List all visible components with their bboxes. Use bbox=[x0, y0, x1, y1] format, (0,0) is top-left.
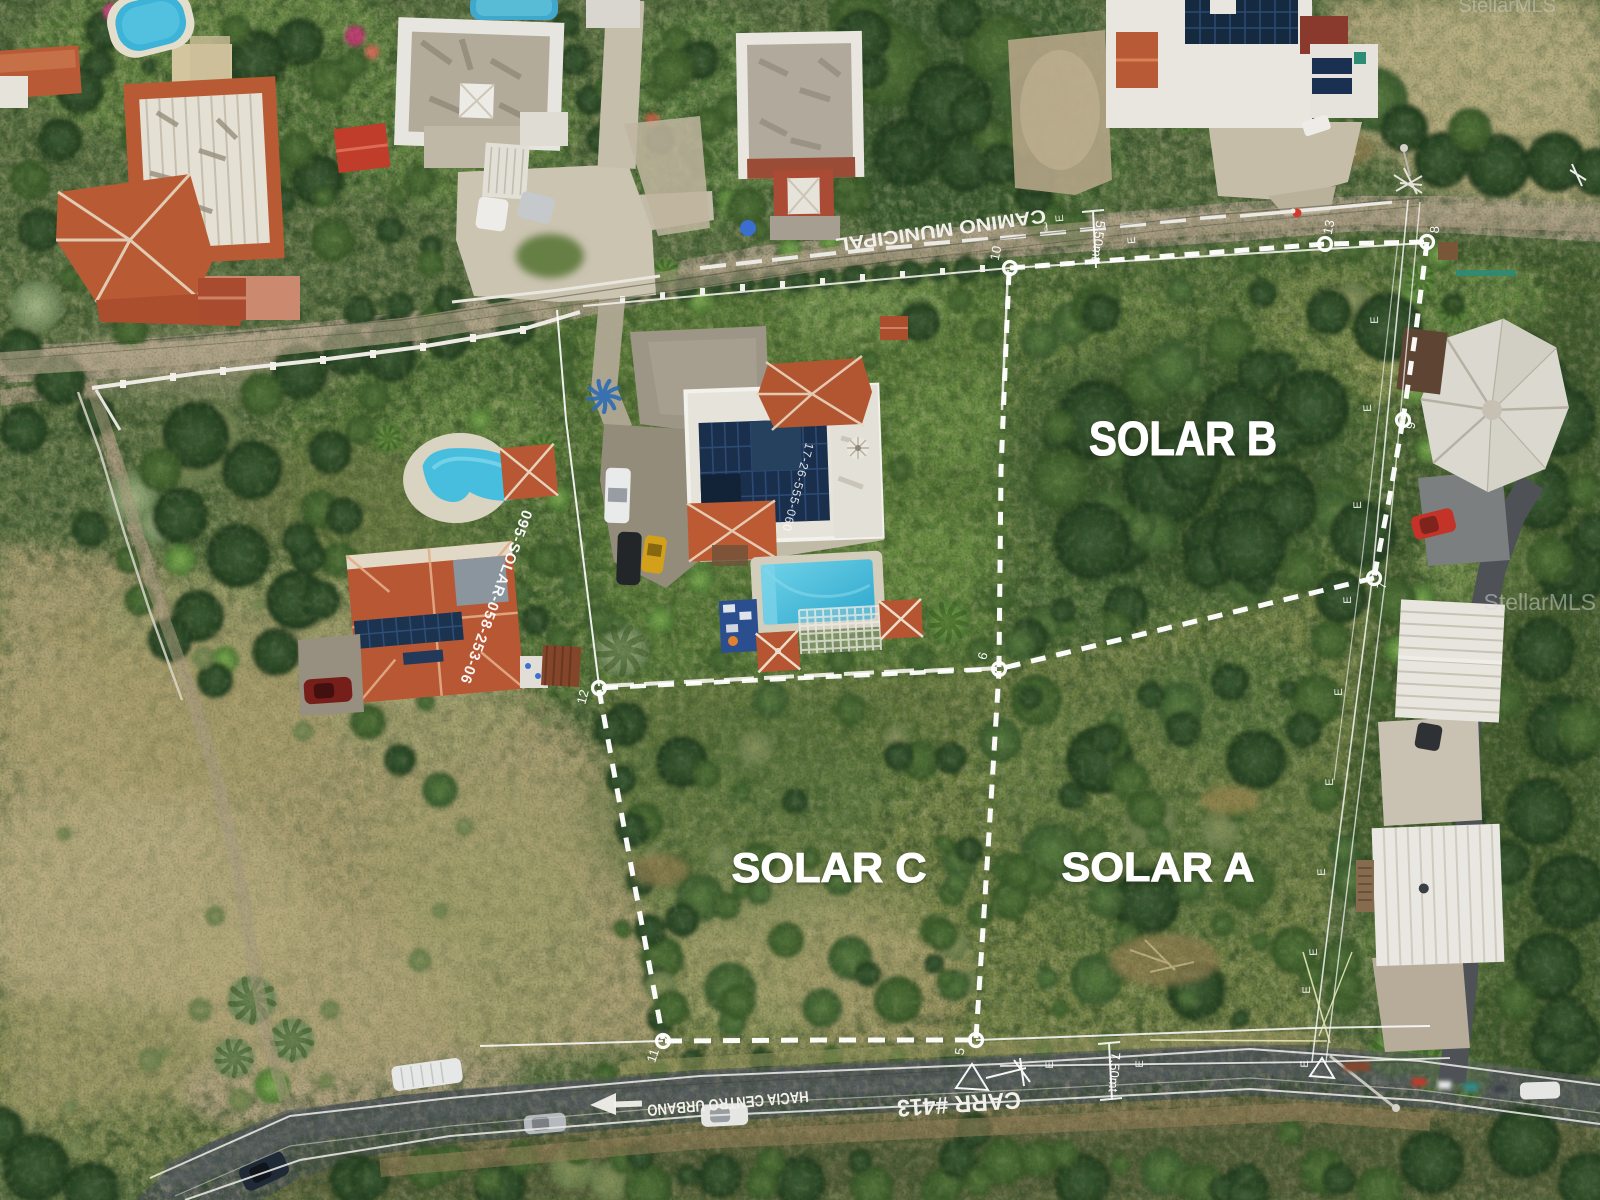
svg-text:E: E bbox=[1362, 404, 1374, 412]
svg-text:E: E bbox=[1369, 316, 1381, 324]
svg-text:E: E bbox=[1044, 1061, 1056, 1068]
svg-text:E: E bbox=[1352, 501, 1364, 509]
svg-text:E: E bbox=[1324, 778, 1336, 786]
svg-text:E: E bbox=[1054, 214, 1067, 222]
svg-text:SOLAR B: SOLAR B bbox=[1089, 413, 1277, 466]
svg-text:E: E bbox=[1342, 596, 1354, 604]
svg-text:SOLAR A: SOLAR A bbox=[1062, 844, 1255, 890]
svg-text:13: 13 bbox=[1320, 218, 1338, 235]
svg-text:E: E bbox=[1299, 1060, 1311, 1067]
svg-text:E: E bbox=[1308, 948, 1320, 956]
svg-text:8: 8 bbox=[1427, 225, 1443, 234]
svg-text:E: E bbox=[1301, 986, 1313, 993]
svg-text:E: E bbox=[1126, 236, 1139, 244]
svg-text:7.50mt: 7.50mt bbox=[1106, 1052, 1124, 1093]
svg-text:10: 10 bbox=[987, 244, 1005, 261]
svg-text:E: E bbox=[1134, 1060, 1146, 1067]
svg-text:E: E bbox=[1333, 688, 1345, 696]
svg-text:StellarMLS: StellarMLS bbox=[1458, 0, 1556, 17]
svg-text:SOLAR C: SOLAR C bbox=[732, 844, 927, 891]
svg-text:StellarMLS: StellarMLS bbox=[1484, 589, 1596, 615]
svg-text:E: E bbox=[1316, 868, 1328, 876]
